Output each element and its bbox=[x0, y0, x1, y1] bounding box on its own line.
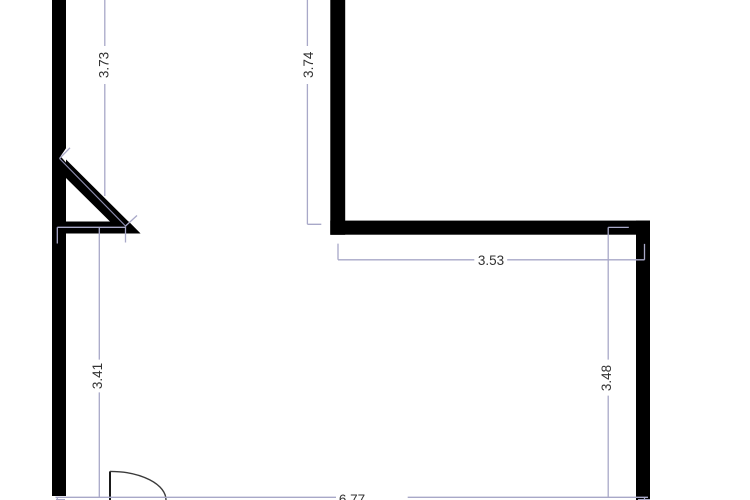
svg-text:3.74: 3.74 bbox=[301, 51, 316, 78]
svg-text:6.77: 6.77 bbox=[339, 492, 365, 500]
svg-text:3.73: 3.73 bbox=[96, 52, 111, 78]
svg-text:3.41: 3.41 bbox=[90, 363, 105, 389]
svg-text:3.53: 3.53 bbox=[478, 253, 504, 268]
svg-text:3.48: 3.48 bbox=[599, 365, 614, 391]
